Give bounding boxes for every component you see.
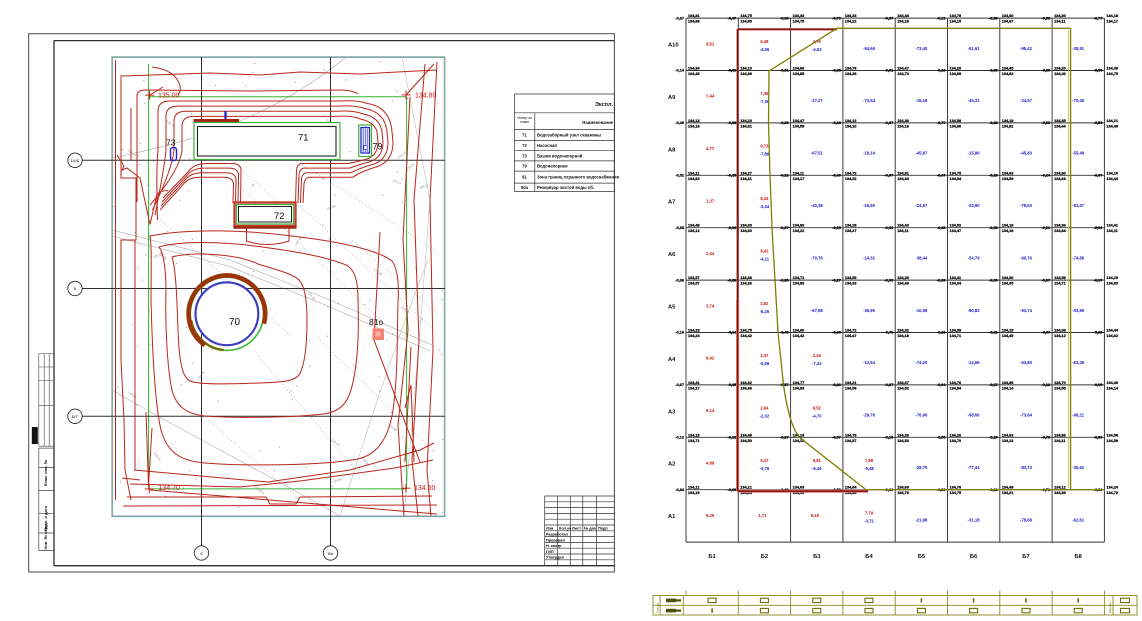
svg-text:134,35: 134,35 xyxy=(1054,119,1066,123)
svg-text:134,10: 134,10 xyxy=(845,124,857,128)
svg-text:б/в: б/в xyxy=(328,551,334,556)
svg-text:134.70: 134.70 xyxy=(159,485,181,492)
svg-text:9,81: 9,81 xyxy=(813,458,822,463)
svg-text:134,12: 134,12 xyxy=(845,119,857,123)
svg-text:134,40: 134,40 xyxy=(688,72,700,76)
svg-text:Б2: Б2 xyxy=(761,554,768,560)
svg-text:А10: А10 xyxy=(668,43,679,49)
svg-text:-0,20: -0,20 xyxy=(728,488,737,492)
svg-text:134,22: 134,22 xyxy=(793,229,805,233)
svg-text:9,47: 9,47 xyxy=(760,458,769,463)
svg-text:-0,21: -0,21 xyxy=(937,16,946,20)
svg-text:-0,27: -0,27 xyxy=(989,383,998,387)
svg-text:-70,78: -70,78 xyxy=(811,255,824,260)
svg-text:2,64: 2,64 xyxy=(760,406,769,411)
svg-text:-0,59: -0,59 xyxy=(989,226,998,230)
svg-text:134,52: 134,52 xyxy=(897,386,909,390)
svg-text:-0,30: -0,30 xyxy=(989,278,998,282)
svg-text:-15,96: -15,96 xyxy=(968,151,981,156)
svg-text:134,59: 134,59 xyxy=(793,124,805,128)
svg-text:134,26: 134,26 xyxy=(740,282,752,286)
svg-text:8,14: 8,14 xyxy=(706,408,715,413)
svg-text:134,58: 134,58 xyxy=(1106,439,1118,443)
svg-text:-0,26: -0,26 xyxy=(832,383,841,387)
svg-text:134,44: 134,44 xyxy=(1054,124,1067,128)
svg-text:72: 72 xyxy=(522,143,527,148)
svg-text:134,11: 134,11 xyxy=(1106,229,1117,233)
svg-text:-80,82: -80,82 xyxy=(968,308,981,313)
svg-text:-45,83: -45,83 xyxy=(1020,151,1033,156)
svg-text:2,49: 2,49 xyxy=(813,353,822,358)
svg-text:-6,49: -6,49 xyxy=(812,466,822,471)
svg-text:134,77: 134,77 xyxy=(793,381,805,385)
svg-text:-0,84: -0,84 xyxy=(675,488,685,492)
svg-text:-0,35: -0,35 xyxy=(832,69,841,73)
svg-text:-0,91: -0,91 xyxy=(1094,226,1103,230)
svg-text:-7,43: -7,43 xyxy=(812,361,822,366)
svg-text:-12,54: -12,54 xyxy=(863,360,876,365)
svg-text:-24,67: -24,67 xyxy=(915,203,928,208)
svg-text:134,72: 134,72 xyxy=(845,329,857,333)
svg-text:80а: 80а xyxy=(521,185,529,190)
svg-text:134,27: 134,27 xyxy=(740,171,752,175)
svg-text:134,46: 134,46 xyxy=(740,386,752,390)
svg-text:134,28: 134,28 xyxy=(845,224,857,228)
svg-text:79: 79 xyxy=(522,164,527,169)
svg-text:134,68: 134,68 xyxy=(740,276,752,280)
svg-text:134,41: 134,41 xyxy=(688,381,700,385)
svg-text:134,20: 134,20 xyxy=(950,67,962,71)
svg-text:134,13: 134,13 xyxy=(1002,439,1014,443)
svg-text:А9: А9 xyxy=(668,95,676,101)
svg-text:-0,37: -0,37 xyxy=(1041,331,1050,335)
svg-text:ГИП: ГИП xyxy=(546,550,554,554)
svg-text:-0,67: -0,67 xyxy=(728,16,737,20)
svg-text:134,61: 134,61 xyxy=(740,124,752,128)
svg-text:134,59: 134,59 xyxy=(1054,276,1066,280)
svg-text:-0,82: -0,82 xyxy=(728,121,737,125)
svg-text:134,19: 134,19 xyxy=(1002,224,1014,228)
svg-text:134,84: 134,84 xyxy=(950,386,963,390)
svg-text:-35,90: -35,90 xyxy=(863,308,876,313)
svg-text:-0,51: -0,51 xyxy=(780,69,789,73)
svg-text:-2,44: -2,44 xyxy=(760,204,770,209)
svg-text:-0,15: -0,15 xyxy=(728,383,737,387)
svg-text:134,60: 134,60 xyxy=(793,329,805,333)
svg-text:-0,77: -0,77 xyxy=(1094,16,1103,20)
svg-text:134,48: 134,48 xyxy=(897,14,909,18)
svg-text:-23,90: -23,90 xyxy=(968,203,981,208)
svg-text:-0,22: -0,22 xyxy=(780,174,789,178)
svg-text:-53,80: -53,80 xyxy=(1020,360,1033,365)
svg-text:134,36: 134,36 xyxy=(897,119,909,123)
svg-text:-73,40: -73,40 xyxy=(915,46,928,51)
svg-text:134,19: 134,19 xyxy=(1002,329,1014,333)
svg-text:134,23: 134,23 xyxy=(688,334,700,338)
svg-text:-98,66: -98,66 xyxy=(968,413,981,418)
svg-text:-28,79: -28,79 xyxy=(915,465,928,470)
svg-text:Б: Б xyxy=(74,286,77,291)
svg-text:134,49: 134,49 xyxy=(740,433,752,437)
svg-text:134,60: 134,60 xyxy=(1054,171,1066,175)
svg-text:134,85: 134,85 xyxy=(793,72,805,76)
svg-text:-0,24: -0,24 xyxy=(1041,174,1051,178)
svg-text:А6: А6 xyxy=(668,252,676,258)
svg-text:134,16: 134,16 xyxy=(897,124,909,128)
svg-text:-0,67: -0,67 xyxy=(675,16,684,20)
svg-text:-35,91: -35,91 xyxy=(1072,46,1085,51)
svg-text:134,39: 134,39 xyxy=(1106,67,1118,71)
svg-text:71: 71 xyxy=(522,133,527,138)
svg-text:134,21: 134,21 xyxy=(1106,119,1118,123)
svg-text:-0,66: -0,66 xyxy=(885,226,894,230)
svg-text:-16,90: -16,90 xyxy=(863,203,876,208)
svg-text:-0,46: -0,46 xyxy=(675,121,684,125)
svg-text:134,41: 134,41 xyxy=(950,276,962,280)
svg-text:134,20: 134,20 xyxy=(1054,67,1066,71)
svg-text:134,19: 134,19 xyxy=(1002,119,1014,123)
svg-text:-29,76: -29,76 xyxy=(863,413,876,418)
svg-text:-0,26: -0,26 xyxy=(937,331,946,335)
svg-text:134,69: 134,69 xyxy=(688,20,700,24)
svg-text:134,82: 134,82 xyxy=(1002,124,1014,128)
svg-text:134,81: 134,81 xyxy=(897,171,909,175)
svg-text:-98,21: -98,21 xyxy=(1072,413,1085,418)
svg-text:134,34: 134,34 xyxy=(897,177,910,181)
svg-text:134,42: 134,42 xyxy=(740,334,752,338)
svg-text:Водозаборный узел скважины: Водозаборный узел скважины xyxy=(537,133,601,138)
svg-text:134,20: 134,20 xyxy=(950,433,962,437)
svg-text:134,67: 134,67 xyxy=(1002,20,1014,24)
svg-text:134,32: 134,32 xyxy=(897,329,909,333)
svg-text:Б8: Б8 xyxy=(1075,554,1083,560)
svg-text:-0,37: -0,37 xyxy=(885,121,894,125)
svg-text:-0,50: -0,50 xyxy=(1094,69,1103,73)
svg-text:-0,97: -0,97 xyxy=(885,174,894,178)
svg-text:-94,66: -94,66 xyxy=(863,46,876,51)
svg-text:134,44: 134,44 xyxy=(1106,329,1119,333)
svg-text:135.00: 135.00 xyxy=(158,93,180,100)
svg-text:134,18: 134,18 xyxy=(897,334,909,338)
svg-text:134,12: 134,12 xyxy=(688,229,700,233)
svg-text:-51,61: -51,61 xyxy=(968,46,981,51)
svg-text:134,12: 134,12 xyxy=(1054,334,1066,338)
svg-text:71: 71 xyxy=(298,133,309,144)
svg-text:134,68: 134,68 xyxy=(950,72,962,76)
svg-text:134,83: 134,83 xyxy=(793,224,805,228)
svg-text:-74,88: -74,88 xyxy=(1072,255,1085,260)
svg-text:134,41: 134,41 xyxy=(740,177,752,181)
svg-text:134,17: 134,17 xyxy=(1106,20,1118,24)
svg-text:134,42: 134,42 xyxy=(793,334,805,338)
svg-text:Изм: Изм xyxy=(546,527,554,531)
svg-text:9,73: 9,73 xyxy=(760,144,769,149)
svg-text:134,11: 134,11 xyxy=(688,171,699,175)
svg-text:6,42: 6,42 xyxy=(706,356,715,361)
svg-text:134,28: 134,28 xyxy=(897,20,909,24)
svg-text:134,63: 134,63 xyxy=(1106,282,1118,286)
svg-text:134,75: 134,75 xyxy=(740,14,752,18)
svg-text:-4,96: -4,96 xyxy=(760,47,770,52)
svg-text:134,19: 134,19 xyxy=(1002,229,1014,233)
svg-text:-95,42: -95,42 xyxy=(1020,46,1033,51)
svg-text:8,34: 8,34 xyxy=(760,196,769,201)
svg-text:-67,68: -67,68 xyxy=(811,308,824,313)
svg-text:-14,66: -14,66 xyxy=(968,360,981,365)
svg-text:134,80: 134,80 xyxy=(1002,276,1014,280)
svg-text:134,62: 134,62 xyxy=(688,177,700,181)
svg-text:134,52: 134,52 xyxy=(950,224,962,228)
svg-text:134,75: 134,75 xyxy=(950,171,962,175)
svg-text:134,22: 134,22 xyxy=(845,20,857,24)
svg-text:-0,70: -0,70 xyxy=(832,16,841,20)
svg-text:2,37: 2,37 xyxy=(760,353,769,358)
svg-text:134,71: 134,71 xyxy=(688,439,700,443)
svg-text:134,53: 134,53 xyxy=(897,439,909,443)
svg-text:-24,67: -24,67 xyxy=(1020,98,1033,103)
svg-text:134,21: 134,21 xyxy=(845,381,857,385)
svg-text:-14,32: -14,32 xyxy=(863,255,876,260)
svg-text:4,77: 4,77 xyxy=(706,146,715,151)
svg-text:-0,93: -0,93 xyxy=(1041,16,1050,20)
svg-text:Кол.уч: Кол.уч xyxy=(559,527,571,531)
svg-text:-0,85: -0,85 xyxy=(780,278,789,282)
svg-text:134,17: 134,17 xyxy=(688,386,700,390)
svg-text:134,19: 134,19 xyxy=(688,491,700,495)
svg-text:134,60: 134,60 xyxy=(950,124,962,128)
svg-text:79: 79 xyxy=(373,142,383,152)
svg-text:-0,37: -0,37 xyxy=(1094,174,1103,178)
svg-text:-0,86: -0,86 xyxy=(989,16,998,20)
svg-text:Б4: Б4 xyxy=(865,554,873,560)
svg-text:-0,94: -0,94 xyxy=(937,383,947,387)
svg-text:134,85: 134,85 xyxy=(1002,381,1014,385)
svg-text:-0,19: -0,19 xyxy=(989,436,998,440)
svg-text:134,10: 134,10 xyxy=(1106,171,1118,175)
svg-text:-0,23: -0,23 xyxy=(780,121,789,125)
svg-text:134,63: 134,63 xyxy=(1054,177,1066,181)
svg-text:А2: А2 xyxy=(668,462,675,468)
svg-text:-0,88: -0,88 xyxy=(937,226,946,230)
svg-text:134,73: 134,73 xyxy=(1106,491,1118,495)
svg-text:-0,91: -0,91 xyxy=(885,69,894,73)
svg-text:134,39: 134,39 xyxy=(1054,491,1066,495)
svg-text:-70,45: -70,45 xyxy=(1072,98,1085,103)
svg-text:-0,89: -0,89 xyxy=(728,278,737,282)
svg-text:81о: 81о xyxy=(369,317,383,327)
svg-text:А3: А3 xyxy=(668,409,676,415)
svg-text:-31,18: -31,18 xyxy=(968,517,981,522)
svg-text:-0,93: -0,93 xyxy=(989,69,998,73)
svg-text:Утвердил: Утвердил xyxy=(546,556,565,560)
svg-text:134,23: 134,23 xyxy=(740,119,752,123)
svg-text:134,76: 134,76 xyxy=(950,381,962,385)
svg-text:6,48: 6,48 xyxy=(760,39,769,44)
svg-text:134,11: 134,11 xyxy=(1054,20,1065,24)
svg-text:Проверил: Проверил xyxy=(546,538,565,542)
svg-text:134,62: 134,62 xyxy=(1106,334,1118,338)
svg-text:134,24: 134,24 xyxy=(1106,486,1119,490)
svg-text:-0,67: -0,67 xyxy=(885,16,894,20)
svg-text:1,71: 1,71 xyxy=(758,513,767,518)
svg-text:134,14: 134,14 xyxy=(1002,386,1015,390)
svg-text:134,84: 134,84 xyxy=(1054,229,1067,233)
svg-text:-78,93: -78,93 xyxy=(1020,203,1033,208)
svg-text:А8: А8 xyxy=(668,147,676,153)
svg-text:А1: А1 xyxy=(668,514,676,520)
svg-text:134,30: 134,30 xyxy=(1054,14,1066,18)
svg-text:-0,67: -0,67 xyxy=(675,383,684,387)
svg-text:134,85: 134,85 xyxy=(740,20,752,24)
svg-text:-74,20: -74,20 xyxy=(915,360,928,365)
svg-text:134,69: 134,69 xyxy=(740,72,752,76)
svg-text:134,83: 134,83 xyxy=(1054,433,1066,437)
svg-text:134,79: 134,79 xyxy=(845,433,857,437)
svg-text:-15,18: -15,18 xyxy=(915,98,928,103)
svg-text:-0,14: -0,14 xyxy=(675,69,685,73)
svg-text:134,47: 134,47 xyxy=(897,67,909,71)
svg-text:-0,97: -0,97 xyxy=(1041,278,1050,282)
svg-text:134,11: 134,11 xyxy=(688,486,699,490)
svg-text:134,21: 134,21 xyxy=(740,486,752,490)
svg-text:134,81: 134,81 xyxy=(688,14,700,18)
svg-text:-0,18: -0,18 xyxy=(1094,331,1103,335)
svg-text:134,60: 134,60 xyxy=(1002,14,1014,18)
svg-text:-38,44: -38,44 xyxy=(915,255,928,260)
svg-text:-0,21: -0,21 xyxy=(1041,226,1050,230)
svg-text:-0,67: -0,67 xyxy=(937,174,946,178)
svg-text:плане: плане xyxy=(520,120,529,124)
svg-text:134,36: 134,36 xyxy=(1054,224,1066,228)
svg-text:Разработал: Разработал xyxy=(546,533,568,537)
svg-text:-0,63: -0,63 xyxy=(832,331,841,335)
svg-text:134,39: 134,39 xyxy=(845,72,857,76)
svg-text:134,60: 134,60 xyxy=(740,229,752,233)
svg-text:-0,86: -0,86 xyxy=(728,69,737,73)
svg-text:-4,11: -4,11 xyxy=(760,256,770,261)
svg-text:134,13: 134,13 xyxy=(688,119,700,123)
svg-text:2,44: 2,44 xyxy=(706,251,715,256)
svg-text:-73,84: -73,84 xyxy=(1020,413,1033,418)
svg-text:-19,14: -19,14 xyxy=(863,151,876,156)
svg-text:134,45: 134,45 xyxy=(1002,334,1014,338)
svg-text:-99,76: -99,76 xyxy=(1020,255,1033,260)
svg-text:-0,34: -0,34 xyxy=(780,16,790,20)
svg-text:-0,12: -0,12 xyxy=(1041,383,1050,387)
svg-text:А7: А7 xyxy=(668,200,675,206)
svg-text:134,21: 134,21 xyxy=(1002,491,1014,495)
svg-text:134,57: 134,57 xyxy=(845,439,857,443)
svg-text:72: 72 xyxy=(274,211,285,222)
svg-text:134,66: 134,66 xyxy=(793,67,805,71)
svg-text:Насыпь: Насыпь xyxy=(656,602,660,613)
svg-text:-53,69: -53,69 xyxy=(1072,308,1085,313)
svg-text:134,75: 134,75 xyxy=(1106,72,1118,76)
svg-text:-0,18: -0,18 xyxy=(728,436,737,440)
svg-text:134,29: 134,29 xyxy=(897,276,909,280)
svg-text:-5,48: -5,48 xyxy=(864,466,874,471)
svg-text:-0,81: -0,81 xyxy=(989,331,998,335)
svg-text:-54,79: -54,79 xyxy=(968,255,981,260)
svg-text:Подп: Подп xyxy=(598,527,608,531)
svg-text:134,47: 134,47 xyxy=(950,229,962,233)
svg-text:70: 70 xyxy=(229,317,241,328)
svg-text:134,17: 134,17 xyxy=(793,177,805,181)
svg-text:134,34: 134,34 xyxy=(950,177,963,181)
svg-text:-73,54: -73,54 xyxy=(863,98,876,103)
svg-text:134,63: 134,63 xyxy=(1002,433,1014,437)
svg-text:134,39: 134,39 xyxy=(950,329,962,333)
svg-text:1,37: 1,37 xyxy=(706,199,715,204)
svg-text:-78,68: -78,68 xyxy=(1020,517,1033,522)
svg-text:-4,70: -4,70 xyxy=(812,414,822,419)
svg-text:Б6: Б6 xyxy=(970,554,978,560)
svg-text:134,84: 134,84 xyxy=(845,486,858,490)
svg-text:Лист: Лист xyxy=(572,527,581,531)
svg-text:2,62: 2,62 xyxy=(760,301,769,306)
svg-text:134,70: 134,70 xyxy=(950,439,962,443)
svg-text:134,18: 134,18 xyxy=(1106,14,1118,18)
svg-text:Б7: Б7 xyxy=(1022,554,1029,560)
svg-text:-3,72: -3,72 xyxy=(864,518,874,523)
svg-text:134,26: 134,26 xyxy=(897,433,909,437)
svg-text:-45,31: -45,31 xyxy=(968,98,981,103)
svg-text:-0,70: -0,70 xyxy=(937,121,946,125)
svg-text:134,43: 134,43 xyxy=(897,224,909,228)
svg-text:134,75: 134,75 xyxy=(740,329,752,333)
svg-text:4,89: 4,89 xyxy=(706,461,715,466)
svg-text:-0,63: -0,63 xyxy=(989,121,998,125)
svg-text:9,19: 9,19 xyxy=(811,513,820,518)
svg-text:Б1: Б1 xyxy=(708,554,716,560)
svg-text:-0,73: -0,73 xyxy=(1041,436,1050,440)
svg-text:-0,25: -0,25 xyxy=(728,174,737,178)
svg-text:134,57: 134,57 xyxy=(688,276,700,280)
svg-text:-93,74: -93,74 xyxy=(1020,308,1033,313)
svg-text:-0,53: -0,53 xyxy=(1094,121,1103,125)
svg-text:-5,59: -5,59 xyxy=(760,361,770,366)
svg-text:№ док: № док xyxy=(584,527,596,531)
svg-text:-0,76: -0,76 xyxy=(885,331,894,335)
svg-text:134,58: 134,58 xyxy=(950,119,962,123)
svg-text:-0,12: -0,12 xyxy=(675,436,684,440)
svg-text:-0,18: -0,18 xyxy=(832,121,841,125)
svg-text:134,36: 134,36 xyxy=(1054,329,1066,333)
svg-text:134,48: 134,48 xyxy=(688,224,700,228)
svg-text:134,14: 134,14 xyxy=(1106,386,1119,390)
svg-text:-0,27: -0,27 xyxy=(885,383,894,387)
svg-text:Водонапорная: Водонапорная xyxy=(537,164,568,169)
svg-text:134,11: 134,11 xyxy=(897,229,908,233)
svg-text:-0,80: -0,80 xyxy=(1041,69,1050,73)
svg-text:134,47: 134,47 xyxy=(793,119,805,123)
svg-text:1А/Б: 1А/Б xyxy=(71,158,80,163)
svg-text:-0,90: -0,90 xyxy=(885,278,894,282)
svg-text:134,59: 134,59 xyxy=(845,276,857,280)
svg-text:Экспл.: Экспл. xyxy=(595,102,613,108)
svg-text:-0,55: -0,55 xyxy=(937,436,946,440)
svg-text:134,33: 134,33 xyxy=(845,14,857,18)
svg-text:-35,62: -35,62 xyxy=(1072,465,1085,470)
svg-text:-0,27: -0,27 xyxy=(780,436,789,440)
svg-text:134,56: 134,56 xyxy=(845,386,857,390)
svg-text:134,34: 134,34 xyxy=(950,282,963,286)
svg-text:134,41: 134,41 xyxy=(1106,224,1118,228)
svg-text:-0,89: -0,89 xyxy=(1094,436,1103,440)
svg-text:-0,10: -0,10 xyxy=(937,69,946,73)
svg-text:Выемка: Выемка xyxy=(1108,602,1112,613)
svg-text:134,47: 134,47 xyxy=(845,334,857,338)
